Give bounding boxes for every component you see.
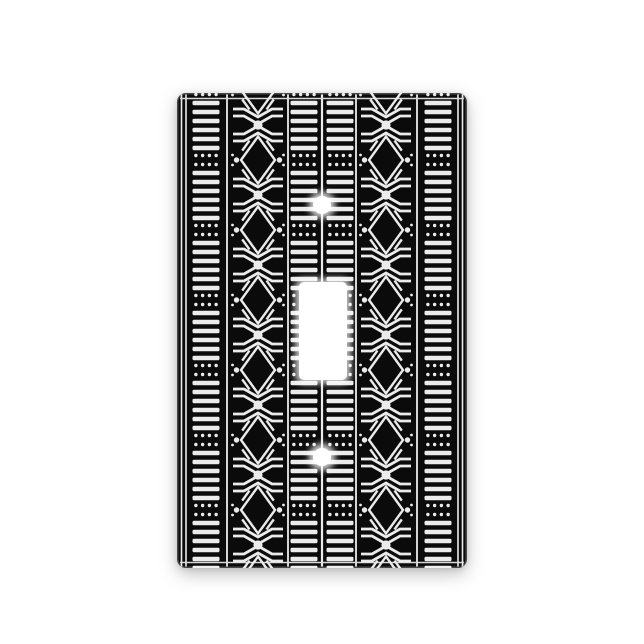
switch-plate — [177, 93, 467, 568]
mudcloth-pattern — [177, 93, 467, 568]
screw-hole-bottom — [309, 444, 336, 471]
screw-hole-top — [309, 192, 336, 219]
toggle-hole — [295, 278, 351, 384]
product-photo[interactable] — [0, 0, 644, 644]
